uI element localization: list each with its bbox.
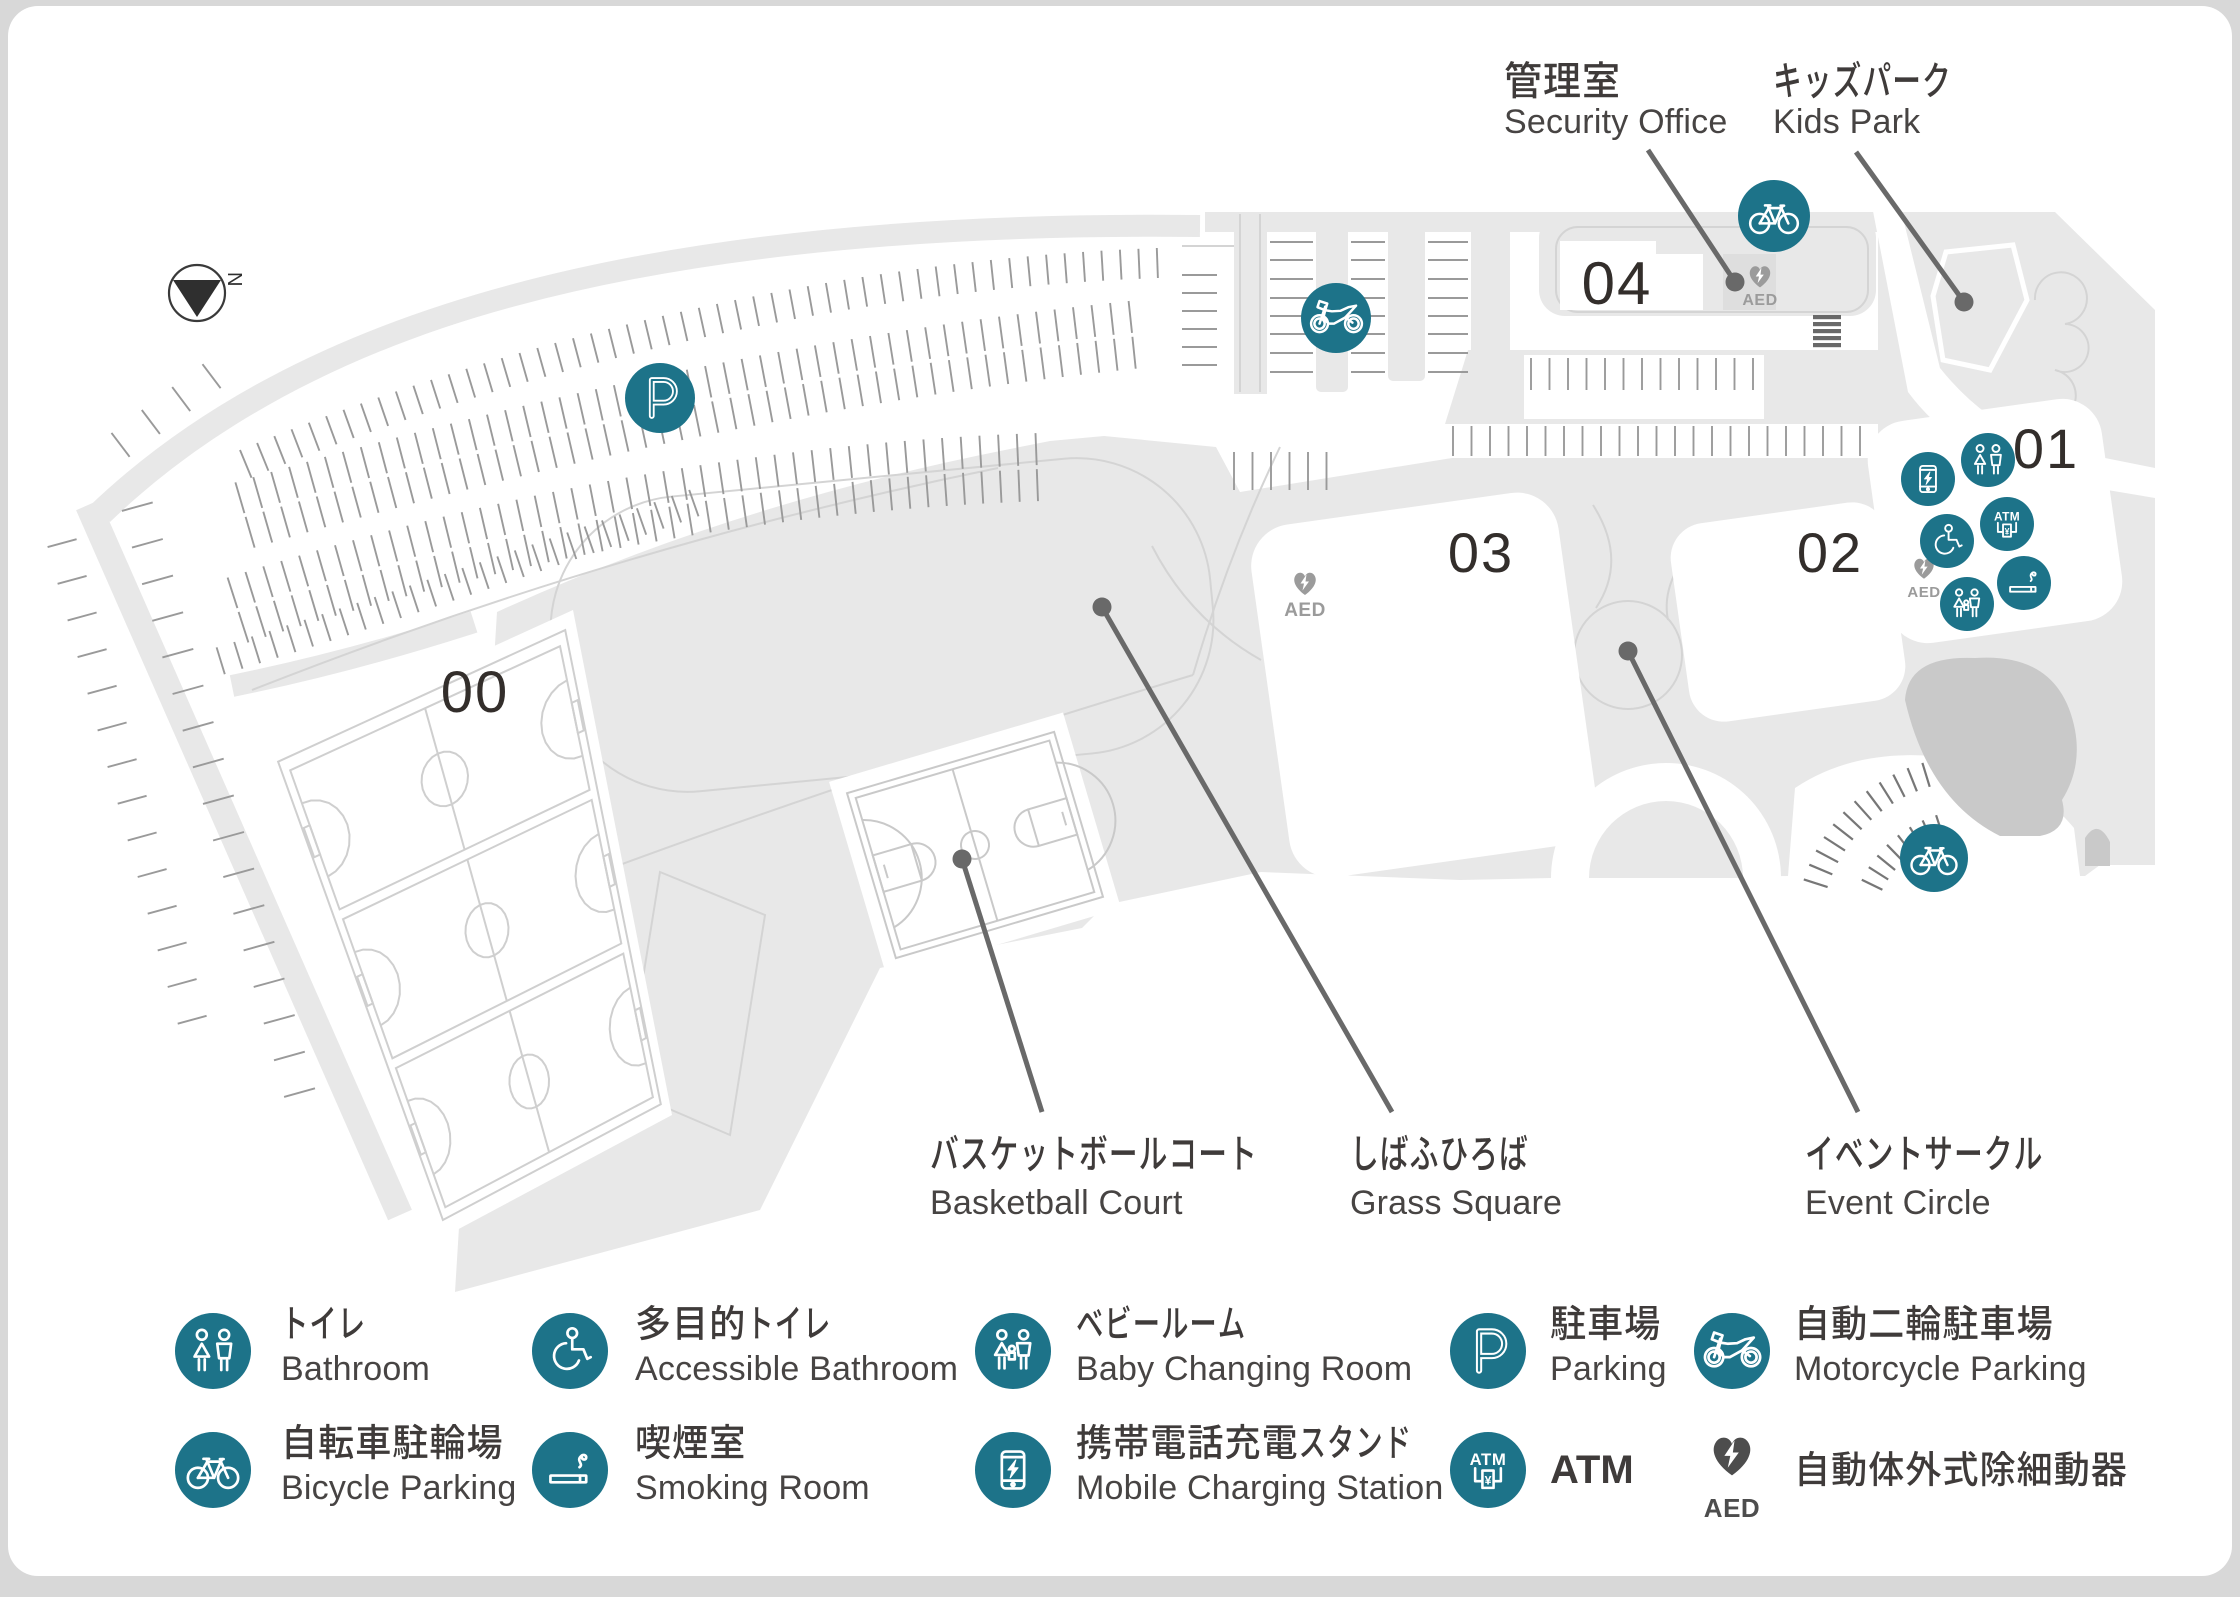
svg-text:03: 03 (1448, 521, 1514, 584)
svg-text:Security Office: Security Office (1504, 103, 1727, 141)
svg-text:ATM: ATM (1994, 509, 2020, 523)
svg-text:ATM: ATM (1470, 1450, 1507, 1469)
svg-text:N: N (223, 272, 245, 286)
svg-text:Event Circle: Event Circle (1805, 1184, 1991, 1222)
svg-text:¥: ¥ (1485, 1474, 1492, 1488)
svg-text:Smoking Room: Smoking Room (635, 1469, 870, 1507)
svg-text:Basketball Court: Basketball Court (930, 1184, 1183, 1222)
svg-text:AED: AED (1907, 584, 1940, 601)
svg-text:ATM: ATM (1550, 1448, 1634, 1492)
svg-text:Bathroom: Bathroom (281, 1350, 430, 1388)
svg-text:Mobile Charging Station: Mobile Charging Station (1076, 1469, 1443, 1507)
svg-text:Kids Park: Kids Park (1773, 103, 1921, 141)
svg-text:Motorcycle Parking: Motorcycle Parking (1794, 1350, 2087, 1388)
svg-text:Parking: Parking (1550, 1350, 1667, 1388)
svg-text:Accessible Bathroom: Accessible Bathroom (635, 1350, 958, 1388)
svg-text:00: 00 (441, 660, 510, 725)
svg-text:01: 01 (2013, 417, 2079, 480)
svg-text:04: 04 (1582, 250, 1653, 317)
svg-text:02: 02 (1797, 521, 1863, 584)
svg-text:AED: AED (1742, 292, 1777, 309)
svg-text:AED: AED (1704, 1493, 1760, 1523)
svg-text:Bicycle Parking: Bicycle Parking (281, 1469, 516, 1507)
svg-text:Baby Changing Room: Baby Changing Room (1076, 1350, 1412, 1388)
svg-text:¥: ¥ (2005, 526, 2010, 536)
svg-text:AED: AED (1284, 600, 1326, 621)
svg-text:Grass Square: Grass Square (1350, 1184, 1562, 1222)
